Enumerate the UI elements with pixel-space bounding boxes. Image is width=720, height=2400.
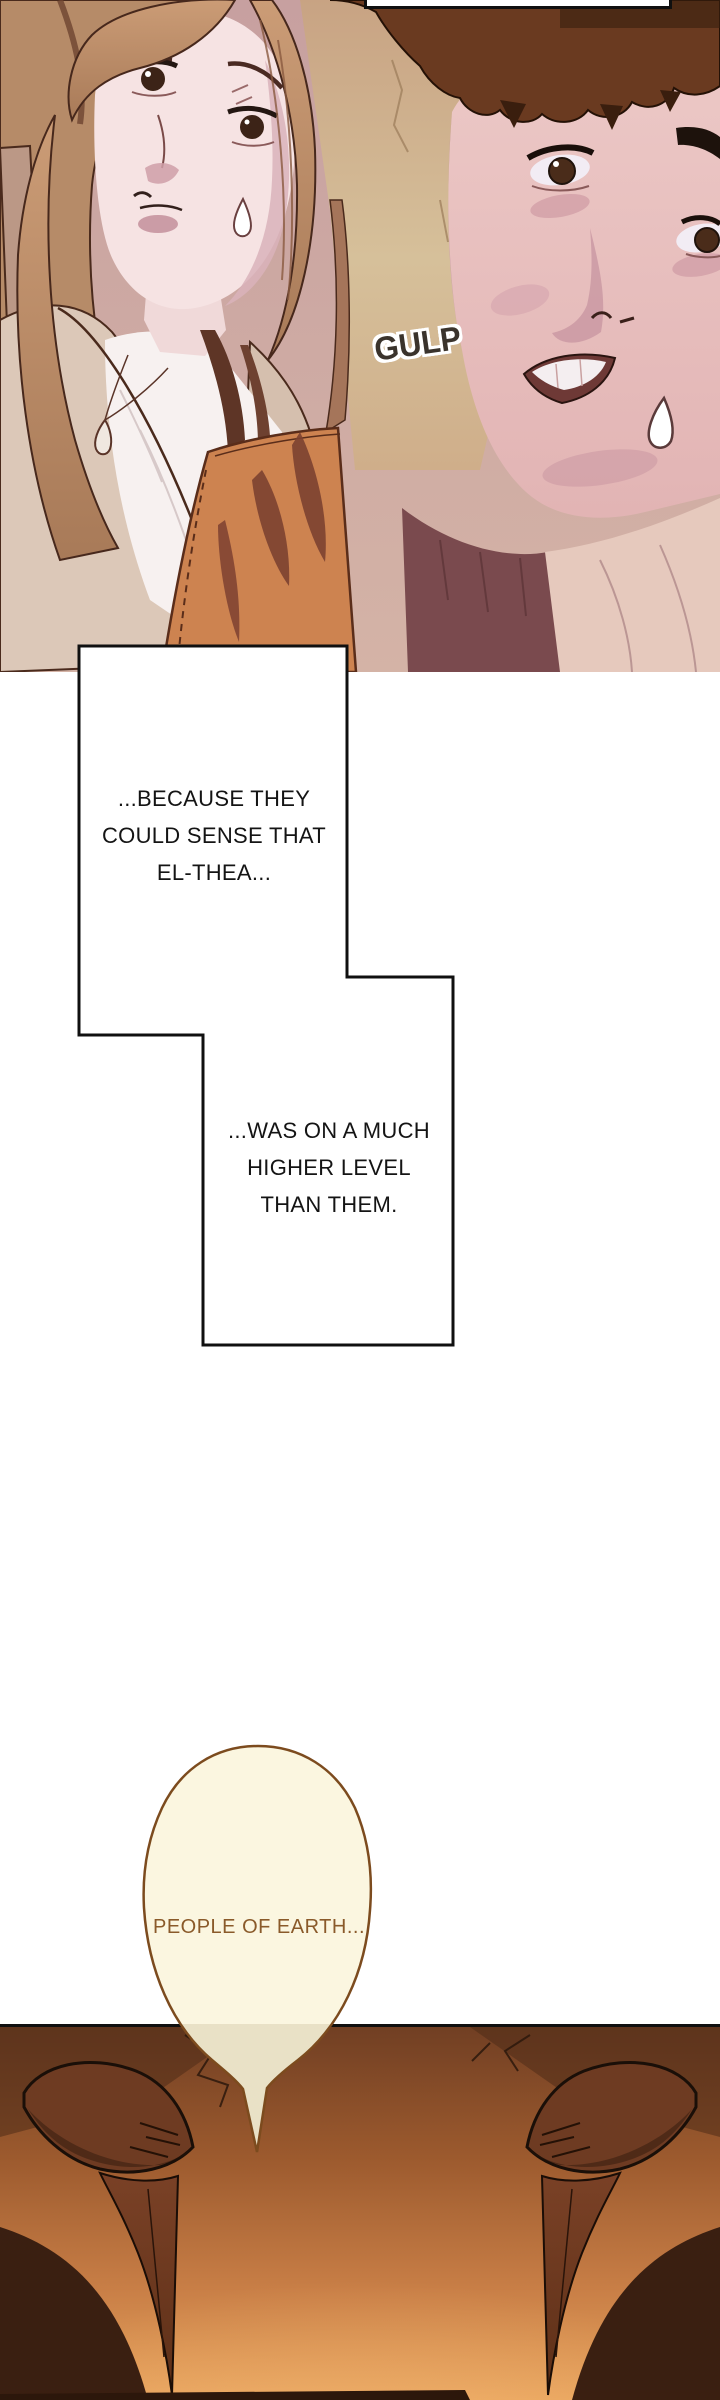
woman-right-eye-iris bbox=[240, 115, 264, 139]
top-art-panel bbox=[0, 0, 720, 672]
caption-narration-1: ...BECAUSE THEY COULD SENSE THAT EL-THEA… bbox=[92, 780, 336, 891]
speech-bubble-text: PEOPLE OF EARTH... bbox=[150, 1916, 368, 1939]
woman-lower-lip-shade bbox=[138, 215, 178, 233]
speech-bubble bbox=[128, 1738, 392, 2170]
comic-page: { "comic": { "sfx": { "gulp": "GULP" }, … bbox=[0, 0, 720, 2400]
man-left-eye-glint bbox=[553, 161, 559, 167]
caption-narration-2: ...WAS ON A MUCH HIGHER LEVEL THAN THEM. bbox=[210, 1112, 448, 1223]
speech-bubble-shape bbox=[144, 1746, 371, 2152]
caption-staircase-polygon bbox=[79, 646, 453, 1345]
woman-left-eye-glint bbox=[145, 71, 151, 77]
top-cutoff-speech-box bbox=[364, 0, 672, 9]
man-left-eye-iris bbox=[549, 158, 575, 184]
woman-left-eye-iris bbox=[141, 67, 165, 91]
man-right-eye-iris bbox=[695, 228, 719, 252]
caption-box-outline bbox=[58, 626, 478, 1366]
woman-right-eye-glint bbox=[245, 120, 250, 125]
top-panel-art bbox=[0, 0, 720, 672]
